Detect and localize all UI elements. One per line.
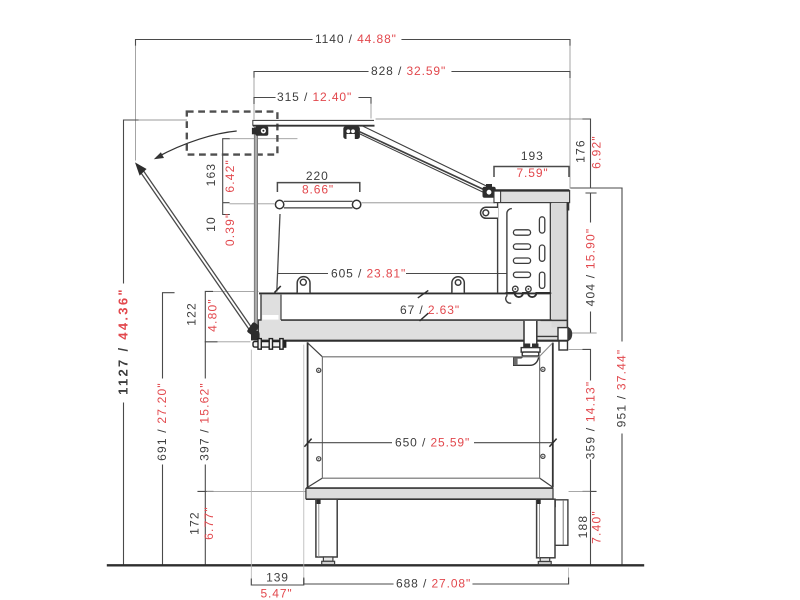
svg-text:10: 10 <box>204 216 218 232</box>
svg-text:172: 172 <box>188 511 202 535</box>
svg-text:6.42": 6.42" <box>223 159 237 193</box>
svg-text:220: 220 <box>306 169 329 183</box>
svg-text:688 / 27.08": 688 / 27.08" <box>396 577 471 591</box>
svg-text:404 / 15.90": 404 / 15.90" <box>583 228 597 307</box>
svg-text:5.47": 5.47" <box>260 587 292 600</box>
svg-text:397 / 15.62": 397 / 15.62" <box>198 382 212 461</box>
svg-text:828 / 32.59": 828 / 32.59" <box>371 64 446 78</box>
svg-text:359 / 14.13": 359 / 14.13" <box>583 381 597 460</box>
svg-text:193: 193 <box>521 149 544 163</box>
svg-text:122: 122 <box>185 302 199 326</box>
svg-text:1140 / 44.88": 1140 / 44.88" <box>315 32 397 46</box>
svg-text:1127 / 44.36": 1127 / 44.36" <box>116 287 131 395</box>
svg-text:163: 163 <box>204 163 218 187</box>
svg-text:7.59": 7.59" <box>516 166 548 180</box>
svg-text:4.80": 4.80" <box>206 298 220 332</box>
svg-text:315 / 12.40": 315 / 12.40" <box>277 90 352 104</box>
svg-text:650 / 25.59": 650 / 25.59" <box>395 436 470 450</box>
svg-text:6.77": 6.77" <box>202 506 216 540</box>
svg-text:691 / 27.20": 691 / 27.20" <box>155 382 169 461</box>
svg-text:7.40": 7.40" <box>590 510 604 544</box>
svg-text:176: 176 <box>574 139 588 163</box>
svg-text:951 / 37.44": 951 / 37.44" <box>615 349 629 428</box>
svg-text:188: 188 <box>576 515 590 539</box>
svg-text:67 / 2.63": 67 / 2.63" <box>400 303 460 317</box>
svg-text:139: 139 <box>266 571 289 585</box>
svg-text:6.92": 6.92" <box>590 135 604 169</box>
svg-text:605 / 23.81": 605 / 23.81" <box>331 266 406 280</box>
svg-text:8.66": 8.66" <box>302 183 334 197</box>
svg-text:0.39": 0.39" <box>223 212 237 246</box>
